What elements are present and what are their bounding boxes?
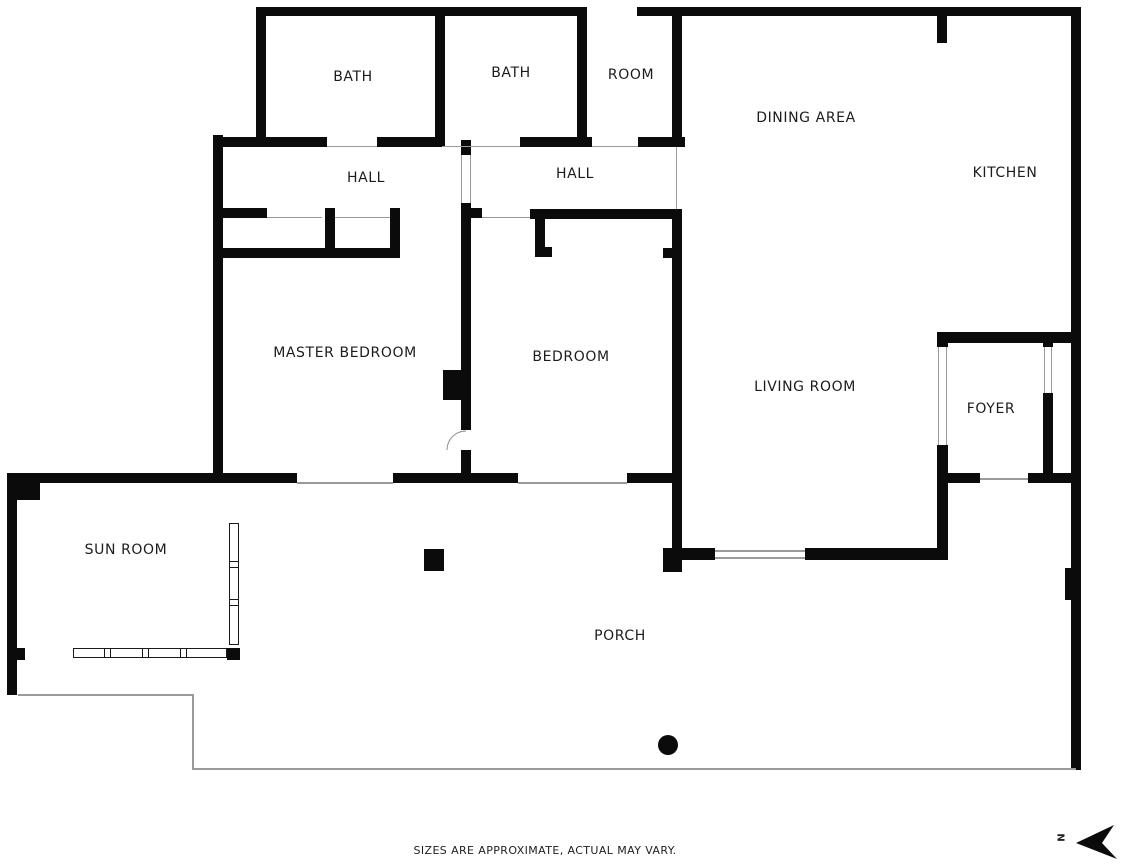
- door-swing-arc: [446, 430, 467, 451]
- room-label-sun-room: SUN ROOM: [85, 542, 168, 558]
- wall-bedroom-bottom-wall: [627, 473, 682, 483]
- room-label-room: ROOM: [608, 67, 654, 83]
- wall-closet-bottom-wall: [223, 248, 400, 258]
- line-porch-edge-left: [18, 694, 193, 696]
- wall-hall-divider-upper: [461, 140, 471, 155]
- wall-sunroom-top-wall: [7, 473, 297, 483]
- wall-livingroom-bottom-wall-a: [678, 548, 715, 560]
- room-label-porch: PORCH: [594, 628, 646, 644]
- room-label-master-bedroom: MASTER BEDROOM: [273, 345, 417, 361]
- line-room-door-sill: [592, 146, 638, 147]
- line-foyer-opening-line-a: [938, 347, 939, 445]
- porch-post: [424, 549, 444, 571]
- wall-under-bath-wall-a: [213, 137, 327, 147]
- wall-foyer-door-jamb: [1043, 338, 1053, 347]
- sunroom-bottom-window: [73, 648, 227, 658]
- line-hall2-opening-sill: [676, 147, 677, 209]
- wall-under-bath-wall-b: [377, 137, 442, 147]
- line-hall-door-sill-a: [461, 155, 462, 203]
- sunroom-right-window: [229, 523, 239, 645]
- wall-left-outer-wall: [213, 135, 223, 483]
- wall-porch-door-jamb: [1065, 568, 1074, 600]
- wall-kitchen-foyer-wall-cap: [937, 332, 948, 347]
- line-bedroom-door-sill: [482, 217, 530, 218]
- sunroom-bottom-window-mullion-2: [180, 648, 187, 658]
- wall-sunroom-left-bump: [7, 648, 25, 660]
- wall-master-bottom-wall: [393, 473, 518, 483]
- line-foyer-closet-door-line-b: [1051, 347, 1052, 393]
- north-label: N: [1055, 833, 1066, 841]
- room-label-bath: BATH: [491, 65, 531, 81]
- floorplan-canvas: BATHBATHROOMDINING AREAKITCHENHALLHALLMA…: [0, 0, 1124, 864]
- wall-bath2-right-wall: [577, 12, 587, 145]
- wall-bedroom-right-wall: [672, 209, 682, 548]
- line-foyer-opening-line-b: [946, 347, 947, 445]
- room-label-foyer: FOYER: [967, 401, 1015, 417]
- line-bath2-door-sill: [442, 146, 520, 147]
- line-closet-door-sill: [335, 217, 390, 218]
- wall-top-wall-left: [256, 7, 587, 16]
- room-label-dining-area: DINING AREA: [756, 110, 856, 126]
- wall-sunroom-corner-block-br: [227, 648, 240, 660]
- wall-hall2-bottom-stub: [471, 208, 482, 218]
- room-label-bedroom: BEDROOM: [532, 349, 609, 365]
- wall-bedroom-top-wall: [530, 209, 680, 219]
- line-master-door-sill: [267, 217, 322, 218]
- line-porch-edge-bottom: [192, 768, 1076, 770]
- line-foyer-closet-door-line-a: [1044, 347, 1045, 393]
- room-label-living-room: LIVING ROOM: [754, 379, 856, 395]
- room-label-hall: HALL: [347, 170, 385, 186]
- room-label-kitchen: KITCHEN: [973, 165, 1038, 181]
- sunroom-bottom-window-mullion-0: [104, 648, 111, 658]
- wall-right-outer-wall: [1071, 7, 1081, 770]
- wall-room-right-wall: [672, 7, 682, 145]
- wall-hall1-bottom-stub: [223, 208, 267, 218]
- wall-bedroom-closet-left-foot: [535, 247, 552, 257]
- wall-kitchen-foyer-wall: [937, 332, 1081, 343]
- wall-foyer-bottom-wall-a: [948, 473, 980, 483]
- wall-master-divider-block: [443, 370, 463, 400]
- wall-foyer-closet-wall: [1043, 393, 1053, 483]
- wall-livingroom-foyer-wall: [937, 445, 948, 560]
- line-livingroom-window-line-a: [715, 550, 805, 552]
- wall-sunroom-corner-block: [7, 473, 40, 500]
- disclaimer-text: SIZES ARE APPROXIMATE, ACTUAL MAY VARY.: [0, 844, 1090, 857]
- line-foyer-porch-door-line: [980, 478, 1028, 480]
- line-livingroom-window-line-b: [715, 557, 805, 559]
- line-bedroom-slider-line: [518, 482, 627, 484]
- porch-column-dot: [658, 735, 678, 755]
- wall-sunroom-left-wall: [7, 500, 17, 695]
- sunroom-right-window-mullion-1: [229, 599, 239, 606]
- room-label-hall: HALL: [556, 166, 594, 182]
- wall-bath-divider-wall: [435, 7, 445, 147]
- line-master-slider-line: [297, 482, 393, 484]
- wall-kitchen-divider-stub: [937, 15, 947, 43]
- sunroom-bottom-window-mullion-1: [142, 648, 149, 658]
- room-label-bath: BATH: [333, 69, 373, 85]
- line-hall-door-sill-b: [470, 155, 471, 203]
- sunroom-right-window-mullion-0: [229, 561, 239, 568]
- line-porch-edge-step: [192, 694, 194, 769]
- wall-top-wall-right: [637, 7, 1081, 16]
- line-bath1-door-sill: [327, 146, 377, 147]
- wall-under-bath-wall-c: [520, 137, 592, 147]
- wall-bath1-left-wall: [256, 7, 266, 147]
- wall-livingroom-bottom-wall-b: [805, 548, 948, 560]
